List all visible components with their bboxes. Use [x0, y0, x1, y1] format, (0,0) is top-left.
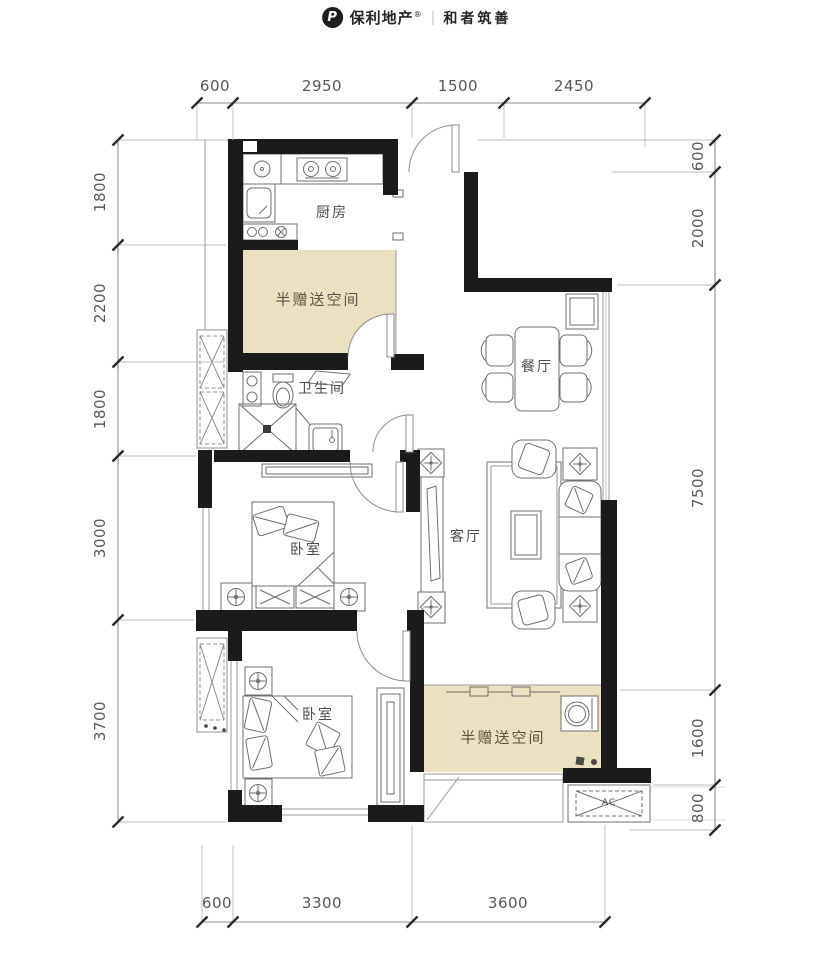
dimension-ticks	[113, 98, 721, 928]
dim-right-1600: 1600	[689, 718, 707, 758]
balcony-ledge	[424, 774, 563, 822]
dim-left-2200: 2200	[91, 283, 109, 323]
room-label-kitchen: 厨房	[316, 202, 348, 222]
bedroom2-furniture	[243, 667, 404, 808]
dim-left-3700: 3700	[91, 701, 109, 741]
dim-top-2450: 2450	[554, 77, 594, 95]
room-label-living: 客厅	[450, 526, 482, 546]
dim-right-800: 800	[689, 793, 707, 823]
dim-right-600: 600	[689, 141, 707, 171]
dim-right-7500: 7500	[689, 468, 707, 508]
dim-left-1800b: 1800	[91, 389, 109, 429]
ac-unit-label: AC	[602, 798, 616, 808]
bedroom1-furniture	[221, 464, 372, 611]
dim-bottom-3600: 3600	[488, 894, 528, 912]
kitchen-entry-frames	[393, 190, 403, 240]
entry-door	[409, 125, 459, 172]
room-label-bathroom: 卫生间	[298, 378, 346, 398]
room-label-bedroom2: 卧室	[302, 704, 334, 724]
room-label-gift-top: 半赠送空间	[275, 289, 360, 310]
kitchen-sink	[243, 184, 275, 222]
dining-furniture	[481, 294, 598, 411]
floorplan-drawing	[0, 0, 833, 960]
equipment-platform-upper	[197, 330, 227, 448]
dim-left-1800a: 1800	[91, 172, 109, 212]
bedroom2-door	[357, 631, 410, 681]
bathroom-door	[373, 415, 413, 452]
dim-top-600: 600	[200, 77, 230, 95]
kitchen-prep-strip	[243, 224, 297, 240]
room-label-bedroom1: 卧室	[290, 539, 322, 559]
dim-bottom-3300: 3300	[302, 894, 342, 912]
equipment-platform-lower	[197, 638, 227, 732]
dim-right-2000: 2000	[689, 208, 707, 248]
dimension-lines	[118, 103, 715, 922]
dim-top-1500: 1500	[438, 77, 478, 95]
living-furniture	[418, 440, 601, 629]
dim-left-3000: 3000	[91, 518, 109, 558]
floorplan-canvas: P 保利地产® | 和者筑善	[0, 0, 833, 960]
room-label-dining: 餐厅	[521, 356, 553, 376]
room-label-gift-bottom: 半赠送空间	[460, 727, 545, 748]
dim-top-2950: 2950	[302, 77, 342, 95]
kitchen-counter	[243, 154, 383, 184]
dim-bottom-600: 600	[202, 894, 232, 912]
